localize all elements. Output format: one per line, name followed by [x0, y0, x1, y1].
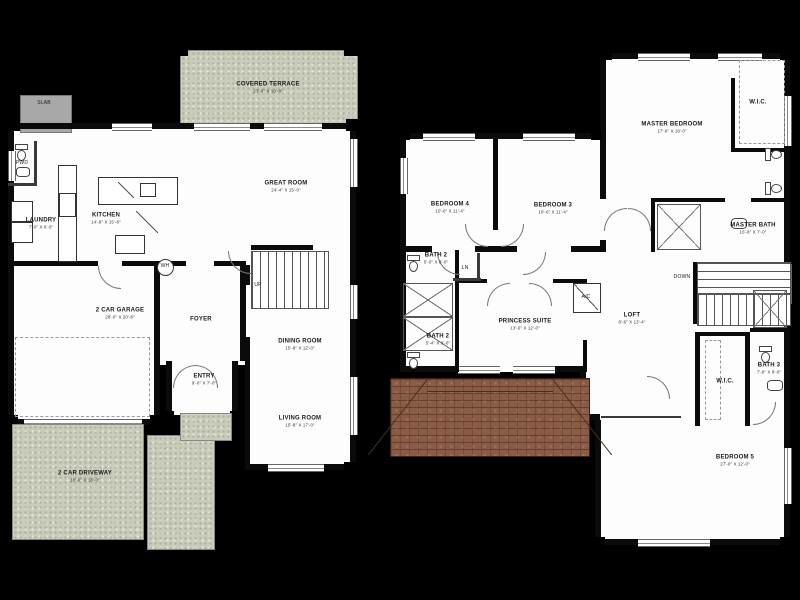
toilet-icon: [15, 144, 28, 161]
floor-plan-canvas: COVERED TERRACE23'-0" X 10'-8" GREAT ROO…: [0, 0, 800, 600]
wall-post: [600, 50, 612, 60]
window: [264, 123, 322, 131]
garage-parking-outline: [15, 337, 150, 417]
stove-icon: [59, 193, 76, 217]
wall-segment: [731, 78, 735, 152]
pantry-corner: [136, 211, 158, 233]
wall-post: [8, 119, 20, 131]
window: [194, 123, 250, 131]
wall-segment: [453, 278, 481, 281]
toilet-icon: [759, 346, 772, 363]
room-label-living: LIVING ROOM15'-8" X 17'-0": [279, 416, 322, 431]
floor-area-bedrooms: [400, 135, 600, 250]
window: [350, 139, 358, 187]
room-label-wic2: W.I.C.: [716, 378, 734, 386]
window: [513, 366, 555, 374]
sink-icon: [767, 380, 783, 391]
shower-icon: [657, 204, 701, 250]
wall-post: [591, 130, 601, 140]
sink-icon: [16, 167, 30, 177]
room-label-dining: DINING ROOM15'-8" X 12'-0": [278, 339, 322, 354]
room-label-bedroom4: BEDROOM 410'-6" X 11'-4": [430, 202, 470, 217]
toilet-icon: [407, 352, 420, 369]
room-label-bedroom3: BEDROOM 310'-6" X 11'-4": [533, 203, 573, 218]
window: [523, 133, 575, 141]
room-label-bedroom5: BEDROOM 527'-0" X 12'-0": [715, 455, 756, 470]
wall-post: [164, 411, 174, 419]
walkway-area: [147, 435, 215, 550]
wall-post: [346, 119, 358, 131]
floor-area-foyer: [160, 265, 246, 365]
room-label-slab: SLAB: [37, 100, 51, 106]
wall-post: [595, 537, 605, 545]
label-stairs-down: DOWN: [674, 274, 691, 280]
roof-shingles: [390, 378, 590, 457]
first-floor-plan: COVERED TERRACE23'-0" X 10'-8" GREAT ROO…: [8, 45, 362, 555]
window: [400, 158, 408, 194]
window: [638, 539, 710, 547]
wall-segment: [750, 328, 790, 332]
window: [423, 133, 475, 141]
stairs-up: [251, 251, 329, 309]
wall-segment: [122, 261, 160, 266]
closet-wall: [601, 416, 681, 418]
wall-segment: [477, 253, 480, 281]
window: [268, 464, 324, 472]
wall-segment: [34, 141, 37, 183]
wall-post: [780, 537, 790, 545]
window: [784, 448, 792, 504]
wall-segment: [655, 198, 725, 202]
wall-segment: [651, 198, 655, 252]
wall-segment: [154, 265, 160, 425]
island-sink-icon: [118, 182, 134, 198]
wall-segment: [245, 337, 250, 468]
floor-area-bedroom5: [595, 372, 790, 545]
wall-segment: [8, 261, 98, 266]
room-label-foyer: FOYER: [190, 316, 212, 324]
window: [350, 285, 358, 319]
wall-segment: [493, 135, 498, 230]
island-sink-icon: [140, 183, 156, 197]
wall-segment: [571, 246, 601, 252]
window: [458, 366, 500, 374]
toilet-icon: [765, 148, 782, 161]
wall-post: [400, 130, 410, 140]
room-label-loft: LOFT8'-6" X 13'-4": [613, 313, 650, 328]
shower-icon: [753, 290, 787, 328]
wall-segment: [695, 332, 749, 336]
wall-post: [344, 462, 356, 472]
wall-segment: [583, 340, 587, 372]
wall-segment: [8, 183, 37, 186]
room-label-great-room: GREAT ROOM24'-4" X 15'-0": [265, 181, 308, 196]
wall-segment: [751, 198, 790, 202]
room-label-ac: A/C: [582, 294, 591, 300]
room-label-pwd: PWD: [16, 160, 28, 166]
wall-segment: [166, 361, 172, 415]
room-label-bath2-upper: BATH 25'-0" X 8'-0": [419, 253, 453, 268]
room-label-kitchen: KITCHEN14'-8" X 15'-8": [86, 213, 127, 228]
window: [638, 53, 690, 61]
room-label-bath3: BATH 37'-6" X 8'-6": [752, 363, 786, 378]
wall-segment: [695, 332, 700, 426]
toilet-icon: [407, 255, 420, 272]
room-label-master-bedroom: MASTER BEDROOM17'-6" X 18'-0": [641, 122, 702, 137]
wall-segment: [232, 361, 238, 415]
wall-segment: [400, 246, 432, 252]
wall-segment: [475, 246, 517, 252]
room-label-master-wic: W.I.C.: [749, 99, 767, 107]
room-label-entry: ENTRY9'-0" X 7'-0": [187, 374, 221, 389]
wall-segment: [745, 332, 750, 426]
room-label-driveway: 2 CAR DRIVEWAY18'-0" X 18'-0": [58, 471, 112, 486]
room-label-princess-suite: PRINCESS SUITE13'-0" X 12'-0": [499, 319, 552, 334]
room-label-covered-terrace: COVERED TERRACE23'-0" X 10'-8": [236, 82, 299, 97]
wall-post: [344, 45, 360, 56]
window: [112, 123, 152, 131]
wall-segment: [600, 53, 606, 199]
window: [350, 377, 358, 435]
wall-post: [172, 45, 188, 56]
label-water-heater: WH: [161, 263, 170, 269]
window: [784, 96, 792, 146]
kitchen-island: [98, 177, 178, 205]
room-label-garage: 2 CAR GARAGE28'-0" X 20'-8": [96, 308, 144, 323]
fridge-icon: [115, 235, 145, 254]
label-stairs-up: UP: [254, 282, 261, 288]
wall-post: [780, 50, 790, 60]
room-label-linen: LN: [462, 265, 469, 271]
entry-porch-area: [180, 413, 232, 441]
toilet-icon: [765, 182, 782, 195]
tub-icon: [403, 283, 453, 317]
second-floor-plan: MASTER BEDROOM17'-6" X 18'-0" W.I.C. MAS…: [395, 50, 795, 550]
room-label-master-bath: MASTER BATH16'-8" X 7'-0": [730, 223, 775, 238]
wall-segment: [251, 245, 313, 250]
room-label-bath2-lower: BATH 25'-4" X 9'-6": [421, 334, 455, 349]
room-label-laundry: LAUNDRY7'-0" X 6'-0": [24, 218, 58, 233]
wall-post: [150, 415, 160, 425]
